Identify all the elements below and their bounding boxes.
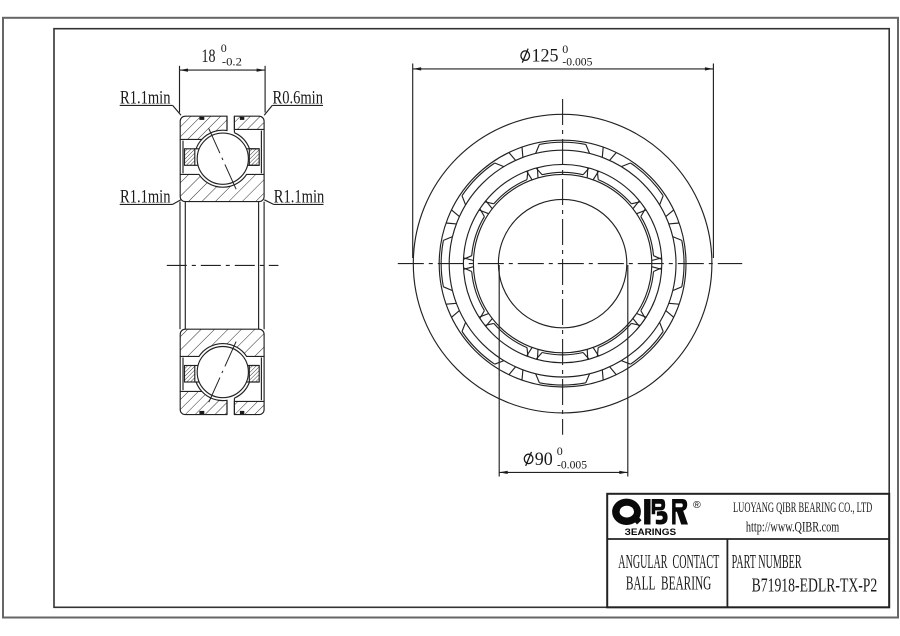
svg-text:90: 90 xyxy=(535,449,553,470)
svg-text:R0.6min: R0.6min xyxy=(273,89,324,109)
svg-text:LUOYANG QIBR BEARING CO., LTD: LUOYANG QIBR BEARING CO., LTD xyxy=(733,499,872,516)
svg-text:R1.1min: R1.1min xyxy=(274,188,325,208)
svg-text:PART NUMBER: PART NUMBER xyxy=(732,552,802,573)
svg-text:0: 0 xyxy=(221,41,227,55)
svg-text:®: ® xyxy=(693,499,701,511)
svg-text:http://www.QIBR.com: http://www.QIBR.com xyxy=(746,520,840,536)
svg-text:B71918-EDLR-TX-P2: B71918-EDLR-TX-P2 xyxy=(752,575,878,596)
svg-text:R1.1min: R1.1min xyxy=(120,89,171,109)
svg-text:ANGULAR CONTACT: ANGULAR CONTACT xyxy=(618,552,719,573)
svg-text:R1.1min: R1.1min xyxy=(120,188,171,208)
svg-text:BALL BEARING: BALL BEARING xyxy=(626,574,711,595)
svg-text:ЗEARINGS: ЗEARINGS xyxy=(625,527,677,537)
svg-text:-0.005: -0.005 xyxy=(557,458,587,472)
svg-text:-0.2: -0.2 xyxy=(222,55,242,69)
svg-text:0: 0 xyxy=(557,444,563,458)
svg-text:125: 125 xyxy=(532,46,559,67)
svg-text:-0.005: -0.005 xyxy=(562,55,592,69)
svg-text:18: 18 xyxy=(202,46,216,67)
